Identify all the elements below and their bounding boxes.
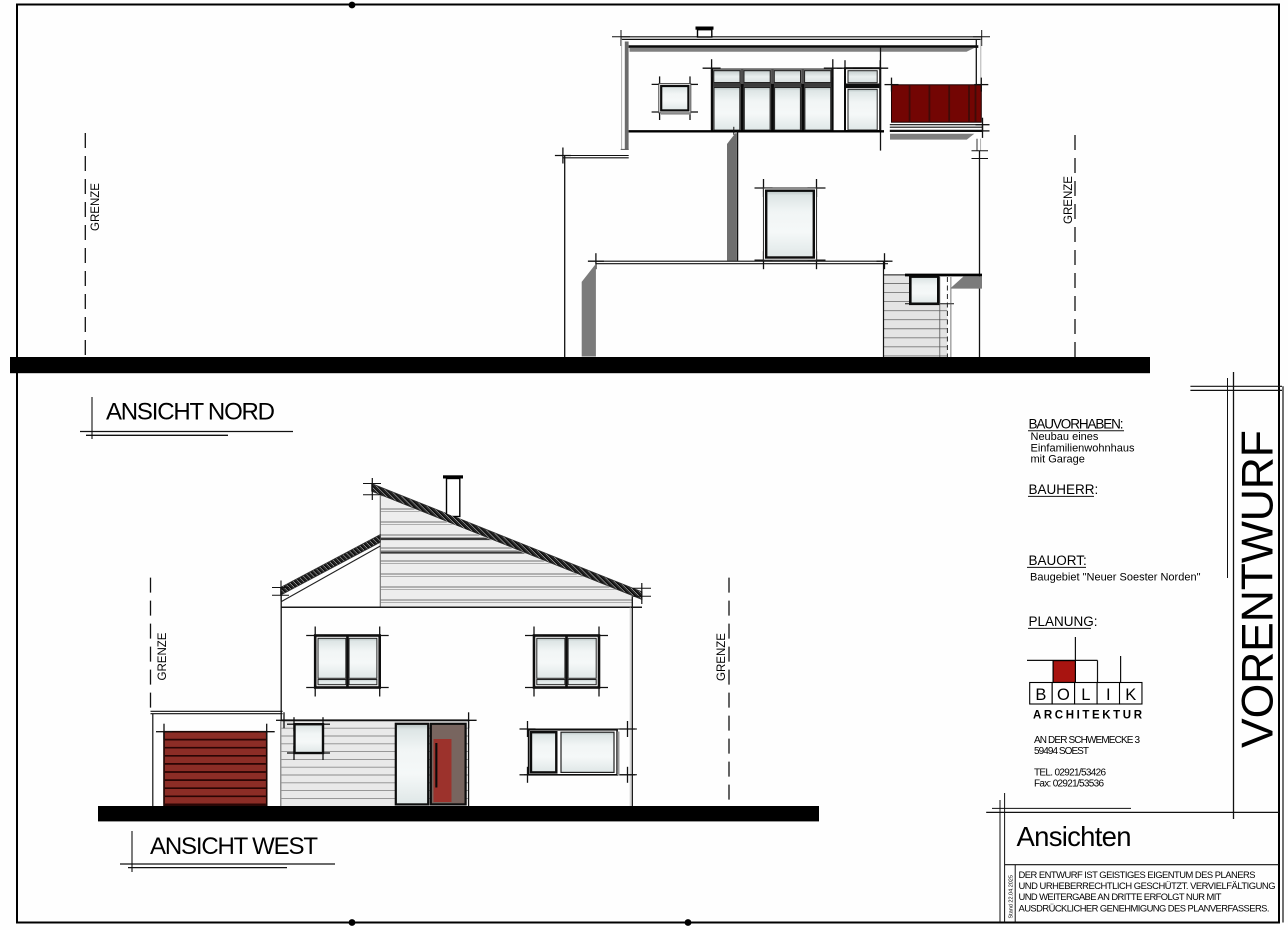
svg-text:mit Garage: mit Garage [1031,454,1085,466]
svg-text:TEL. 02921/53426: TEL. 02921/53426 [1034,768,1106,779]
svg-text:Neubau eines: Neubau eines [1031,431,1099,443]
svg-text:Baugebiet "Neuer Soester Norde: Baugebiet "Neuer Soester Norden" [1030,572,1201,584]
svg-text:Ansichten: Ansichten [1017,821,1132,852]
svg-text:ANSICHT NORD: ANSICHT NORD [106,399,275,426]
svg-text:AUSDRÜCKLICHER GENEHMIGUNG DES: AUSDRÜCKLICHER GENEHMIGUNG DES PLANVERFA… [1019,902,1270,913]
svg-text:PLANUNG:: PLANUNG: [1029,614,1098,629]
svg-text:GRENZE: GRENZE [157,632,169,680]
svg-text:BAUVORHABEN:: BAUVORHABEN: [1029,416,1124,431]
svg-text:B: B [1035,686,1046,704]
svg-text:BAUHERR:: BAUHERR: [1029,482,1099,497]
svg-text:BAUORT:: BAUORT: [1029,553,1087,568]
svg-text:59494 SOEST: 59494 SOEST [1034,746,1089,757]
svg-text:L: L [1081,686,1090,704]
svg-text:K: K [1125,686,1136,704]
svg-text:DER ENTWURF IST GEISTIGES EIGE: DER ENTWURF IST GEISTIGES EIGENTUM DES P… [1019,869,1256,880]
svg-text:Einfamilienwohnhaus: Einfamilienwohnhaus [1031,442,1135,454]
svg-text:UND WEITERGABE AN DRITTE ERFOL: UND WEITERGABE AN DRITTE ERFOLGT NUR MIT [1019,891,1222,902]
svg-text:Stand 22.04.2025: Stand 22.04.2025 [1009,875,1015,918]
svg-text:Fax: 02921/53536: Fax: 02921/53536 [1034,778,1104,789]
svg-text:ARCHITEKTUR: ARCHITEKTUR [1033,710,1143,722]
svg-text:I: I [1106,686,1111,704]
svg-text:ANSICHT WEST: ANSICHT WEST [150,833,318,860]
svg-text:GRENZE: GRENZE [90,183,102,231]
svg-text:AN DER SCHWEMECKE 3: AN DER SCHWEMECKE 3 [1034,735,1140,746]
svg-text:GRENZE: GRENZE [1063,176,1075,224]
svg-text:GRENZE: GRENZE [716,633,728,681]
svg-text:VORENTWURF: VORENTWURF [1234,430,1283,748]
svg-text:UND URHEBERRECHTLICH GESCHÜTZT: UND URHEBERRECHTLICH GESCHÜTZT. VERVIELF… [1019,880,1276,891]
svg-text:O: O [1057,686,1070,704]
